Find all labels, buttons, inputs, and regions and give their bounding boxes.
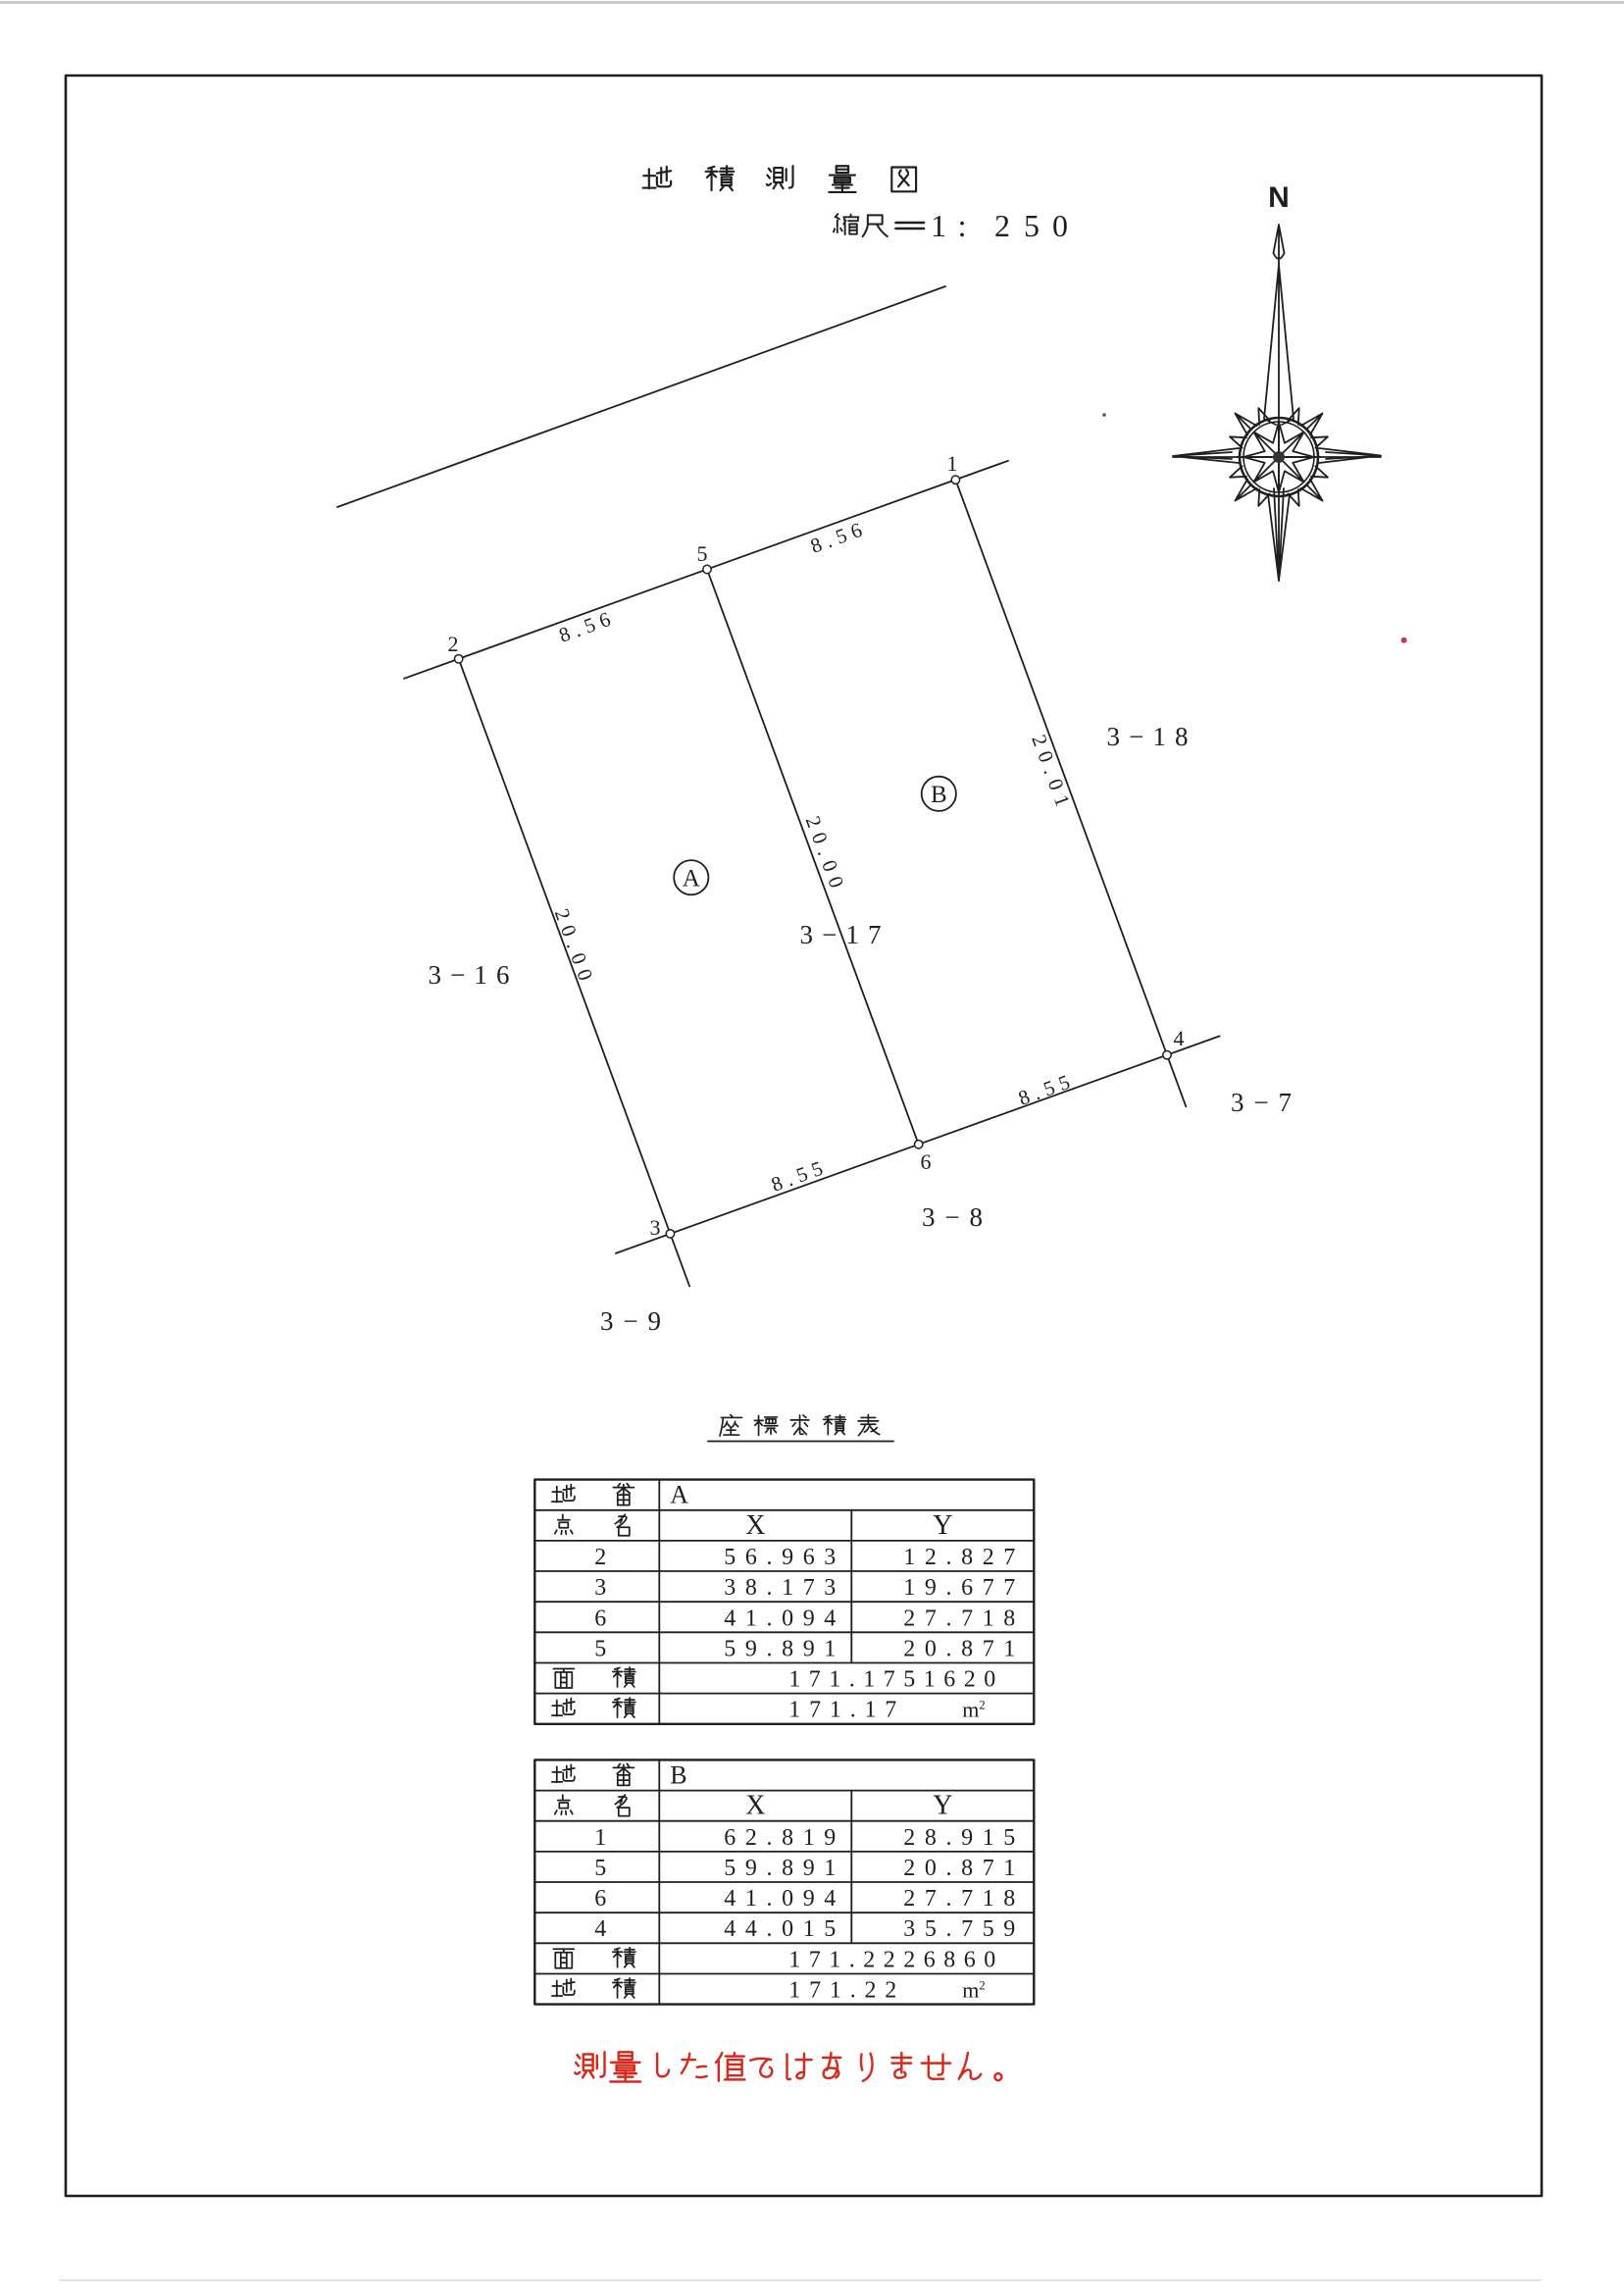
svg-text:2: 2 xyxy=(979,1978,986,1993)
svg-text:5: 5 xyxy=(594,1856,606,1881)
svg-text:3−9: 3−9 xyxy=(600,1306,661,1336)
svg-text:A: A xyxy=(683,866,700,892)
svg-text:4: 4 xyxy=(1174,1026,1185,1050)
svg-text:3: 3 xyxy=(650,1215,661,1240)
svg-text:B: B xyxy=(670,1761,686,1790)
svg-text:Y: Y xyxy=(933,1510,952,1541)
svg-text:X: X xyxy=(745,1791,765,1821)
svg-text:Y: Y xyxy=(933,1791,952,1821)
svg-text:3: 3 xyxy=(594,1575,606,1601)
svg-text:1: 1 xyxy=(594,1825,606,1851)
svg-text:2: 2 xyxy=(594,1545,606,1570)
svg-text:6: 6 xyxy=(594,1606,606,1631)
svg-text:1: 1 xyxy=(947,451,958,476)
svg-text:171.1751620: 171.1751620 xyxy=(788,1667,995,1693)
svg-text:171.2226860: 171.2226860 xyxy=(788,1947,995,1972)
svg-text:5: 5 xyxy=(697,541,708,566)
svg-text:1: 1 xyxy=(931,208,946,243)
svg-text:5: 5 xyxy=(1024,208,1040,243)
svg-text:N: N xyxy=(1268,181,1290,214)
svg-text:6: 6 xyxy=(921,1149,932,1174)
svg-text:4: 4 xyxy=(594,1916,606,1942)
svg-text:3−8: 3−8 xyxy=(922,1202,983,1232)
svg-text:2: 2 xyxy=(979,1698,986,1712)
svg-text:2: 2 xyxy=(994,208,1010,243)
svg-text:A: A xyxy=(670,1481,688,1509)
svg-text:X: X xyxy=(745,1510,765,1541)
svg-text:2: 2 xyxy=(448,632,459,656)
svg-text:m: m xyxy=(962,1698,979,1722)
svg-text:m: m xyxy=(962,1978,979,2003)
svg-text:0: 0 xyxy=(1052,208,1068,243)
svg-text:B: B xyxy=(931,782,947,808)
svg-text:5: 5 xyxy=(594,1636,606,1661)
svg-text:3−7: 3−7 xyxy=(1231,1088,1292,1117)
svg-text::: : xyxy=(958,208,967,243)
svg-text:6: 6 xyxy=(594,1886,606,1912)
